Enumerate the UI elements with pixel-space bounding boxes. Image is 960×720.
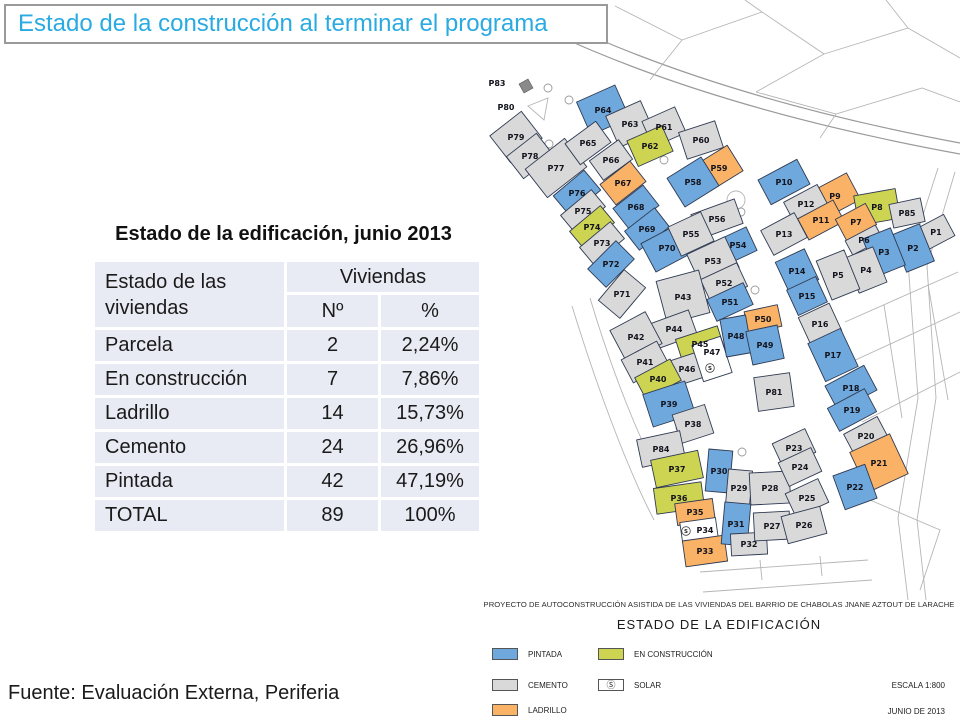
parcel-label-P5: P5 — [832, 271, 844, 280]
parcel-label-P26: P26 — [796, 521, 813, 530]
legend-swatch-ladrillo — [492, 704, 518, 716]
parcel-label-P79: P79 — [508, 133, 525, 142]
parcel-label-P24: P24 — [792, 463, 809, 472]
parcel-label-P15: P15 — [799, 292, 816, 301]
map-subtitle: ESTADO DE LA EDIFICACIÓN — [480, 617, 958, 632]
parcel-label-P50: P50 — [755, 315, 772, 324]
table-group-header: Viviendas — [287, 262, 482, 295]
parcel-label-P62: P62 — [642, 142, 659, 151]
parcel-label-P16: P16 — [812, 320, 829, 329]
legend-item-pintada: PINTADA — [492, 648, 562, 660]
parcel-label-P75: P75 — [575, 207, 592, 216]
parcel-label-P66: P66 — [603, 156, 620, 165]
parcel-label-P12: P12 — [798, 200, 815, 209]
parcel-label-P49: P49 — [757, 341, 774, 350]
table-row-header: Estado de las viviendas — [95, 262, 287, 330]
parcel-label-P1: P1 — [930, 228, 942, 237]
table-row: Parcela 2 2,24% — [95, 330, 482, 364]
parcel-label-P13: P13 — [776, 230, 793, 239]
parcel-label-P9: P9 — [829, 192, 841, 201]
parcel-label-P22: P22 — [847, 483, 864, 492]
table-row: Pintada 42 47,19% — [95, 466, 482, 500]
parcel-label-P39: P39 — [661, 400, 678, 409]
map-scale: ESCALA 1:800 — [845, 681, 945, 690]
parcel-label-P71: P71 — [614, 290, 631, 299]
map-date: JUNIO DE 2013 — [845, 707, 945, 716]
solar-symbol-icon: Ⓢ — [606, 681, 615, 690]
parcel-label-P21: P21 — [871, 459, 888, 468]
legend-label: PINTADA — [528, 650, 562, 659]
parcel-label-P43: P43 — [675, 293, 692, 302]
map-caption: PROYECTO DE AUTOCONSTRUCCIÓN ASISTIDA DE… — [480, 600, 958, 609]
legend-label: EN CONSTRUCCIÓN — [634, 650, 713, 659]
parcel-label-P76: P76 — [569, 189, 586, 198]
parcel-label-P80: P80 — [498, 103, 515, 112]
parcel-label-P4: P4 — [860, 266, 872, 275]
table-title: Estado de la edificación, junio 2013 — [95, 223, 472, 246]
legend-swatch-cemento — [492, 679, 518, 691]
parcel-label-P31: P31 — [728, 520, 745, 529]
table-row: TOTAL 89 100% — [95, 500, 482, 534]
slide-title-box: Estado de la construcción al terminar el… — [4, 4, 608, 44]
parcel-label-P14: P14 — [789, 267, 806, 276]
parcel-label-P53: P53 — [705, 257, 722, 266]
legend-label: LADRILLO — [528, 706, 567, 715]
parcel-label-P11: P11 — [813, 216, 830, 225]
parcel-label-P37: P37 — [669, 465, 686, 474]
legend-label: CEMENTO — [528, 681, 568, 690]
parcel-label-P63: P63 — [622, 120, 639, 129]
parcel-label-P68: P68 — [628, 203, 645, 212]
parcel-label-P54: P54 — [730, 241, 747, 250]
table-col-n: Nº — [287, 295, 381, 330]
legend-item-solar: ⓈSOLAR — [598, 679, 661, 691]
parcel-label-P19: P19 — [844, 406, 861, 415]
table-col-pct: % — [381, 295, 482, 330]
parcel-label-P69: P69 — [639, 225, 656, 234]
legend-swatch-solar: Ⓢ — [598, 679, 624, 691]
parcel-label-P67: P67 — [615, 179, 632, 188]
parcel-label-P73: P73 — [594, 239, 611, 248]
parcel-label-P36: P36 — [671, 494, 688, 503]
parcel-label-P29: P29 — [731, 484, 748, 493]
status-table: Estado de las viviendas Viviendas Nº % P… — [95, 262, 482, 534]
parcel-label-P77: P77 — [548, 164, 565, 173]
parcel-label-P33: P33 — [697, 547, 714, 556]
parcel-label-P3: P3 — [878, 248, 889, 257]
parcel-label-P40: P40 — [650, 375, 667, 384]
parcel-label-P47: P47 — [704, 348, 721, 357]
parcel-label-P84: P84 — [653, 445, 670, 454]
legend-swatch-construccion — [598, 648, 624, 660]
parcel-label-P17: P17 — [825, 351, 842, 360]
parcel-label-P34: P34 — [697, 526, 714, 535]
parcel-label-P7: P7 — [850, 218, 861, 227]
parcel-label-P81: P81 — [766, 388, 783, 397]
parcel-label-P27: P27 — [764, 522, 781, 531]
parcel-label-P56: P56 — [709, 215, 726, 224]
slide: P79P78P77P76P75P74P73P72P71P64P63P61P62P… — [0, 0, 960, 720]
parcel-label-P72: P72 — [603, 260, 620, 269]
legend-swatch-pintada — [492, 648, 518, 660]
parcel-label-P85: P85 — [899, 209, 916, 218]
parcel-label-P28: P28 — [762, 484, 779, 493]
table-row: Cemento 24 26,96% — [95, 432, 482, 466]
legend-item-cemento: CEMENTO — [492, 679, 568, 691]
parcel-label-P64: P64 — [595, 106, 612, 115]
legend-label: SOLAR — [634, 681, 661, 690]
legend-item-construccion: EN CONSTRUCCIÓN — [598, 648, 713, 660]
parcel-label-P58: P58 — [685, 178, 702, 187]
table-row: Ladrillo 14 15,73% — [95, 398, 482, 432]
parcel-label-P44: P44 — [666, 325, 683, 334]
parcel-label-P60: P60 — [693, 136, 710, 145]
parcel-label-P70: P70 — [659, 244, 676, 253]
map-parcels — [490, 85, 955, 567]
parcel-label-P51: P51 — [722, 298, 739, 307]
parcel-label-P46: P46 — [679, 365, 696, 374]
parcel-label-P8: P8 — [871, 203, 883, 212]
parcel-label-P38: P38 — [685, 420, 702, 429]
parcel-label-P74: P74 — [584, 223, 601, 232]
parcel-label-P42: P42 — [628, 333, 645, 342]
parcel-label-P55: P55 — [683, 230, 700, 239]
parcel-label-P61: P61 — [656, 123, 673, 132]
solar-symbol-letter: S — [708, 366, 712, 372]
legend-item-ladrillo: LADRILLO — [492, 704, 567, 716]
parcel-label-P20: P20 — [858, 432, 875, 441]
parcel-label-P48: P48 — [728, 332, 745, 341]
parcel-label-P18: P18 — [843, 384, 860, 393]
table-row: En construcción 7 7,86% — [95, 364, 482, 398]
parcel-label-P10: P10 — [776, 178, 793, 187]
parcel-label-P23: P23 — [786, 444, 803, 453]
parcel-label-P2: P2 — [907, 244, 918, 253]
parcel-label-P25: P25 — [799, 494, 816, 503]
parcel-label-P32: P32 — [741, 540, 758, 549]
parcel-label-P78: P78 — [522, 152, 539, 161]
parcel-label-P6: P6 — [858, 236, 870, 245]
solar-symbol-letter: S — [684, 529, 688, 535]
parcel-label-P35: P35 — [687, 508, 704, 517]
parcel-label-P83: P83 — [489, 79, 506, 88]
slide-title: Estado de la construcción al terminar el… — [6, 10, 548, 38]
parcel-label-P30: P30 — [711, 467, 728, 476]
parcel-label-P41: P41 — [637, 358, 654, 367]
parcel-label-P52: P52 — [716, 279, 733, 288]
parcel-label-P65: P65 — [580, 139, 597, 148]
parcel-label-P59: P59 — [711, 164, 728, 173]
source-note: Fuente: Evaluación Externa, Periferia — [8, 682, 339, 705]
